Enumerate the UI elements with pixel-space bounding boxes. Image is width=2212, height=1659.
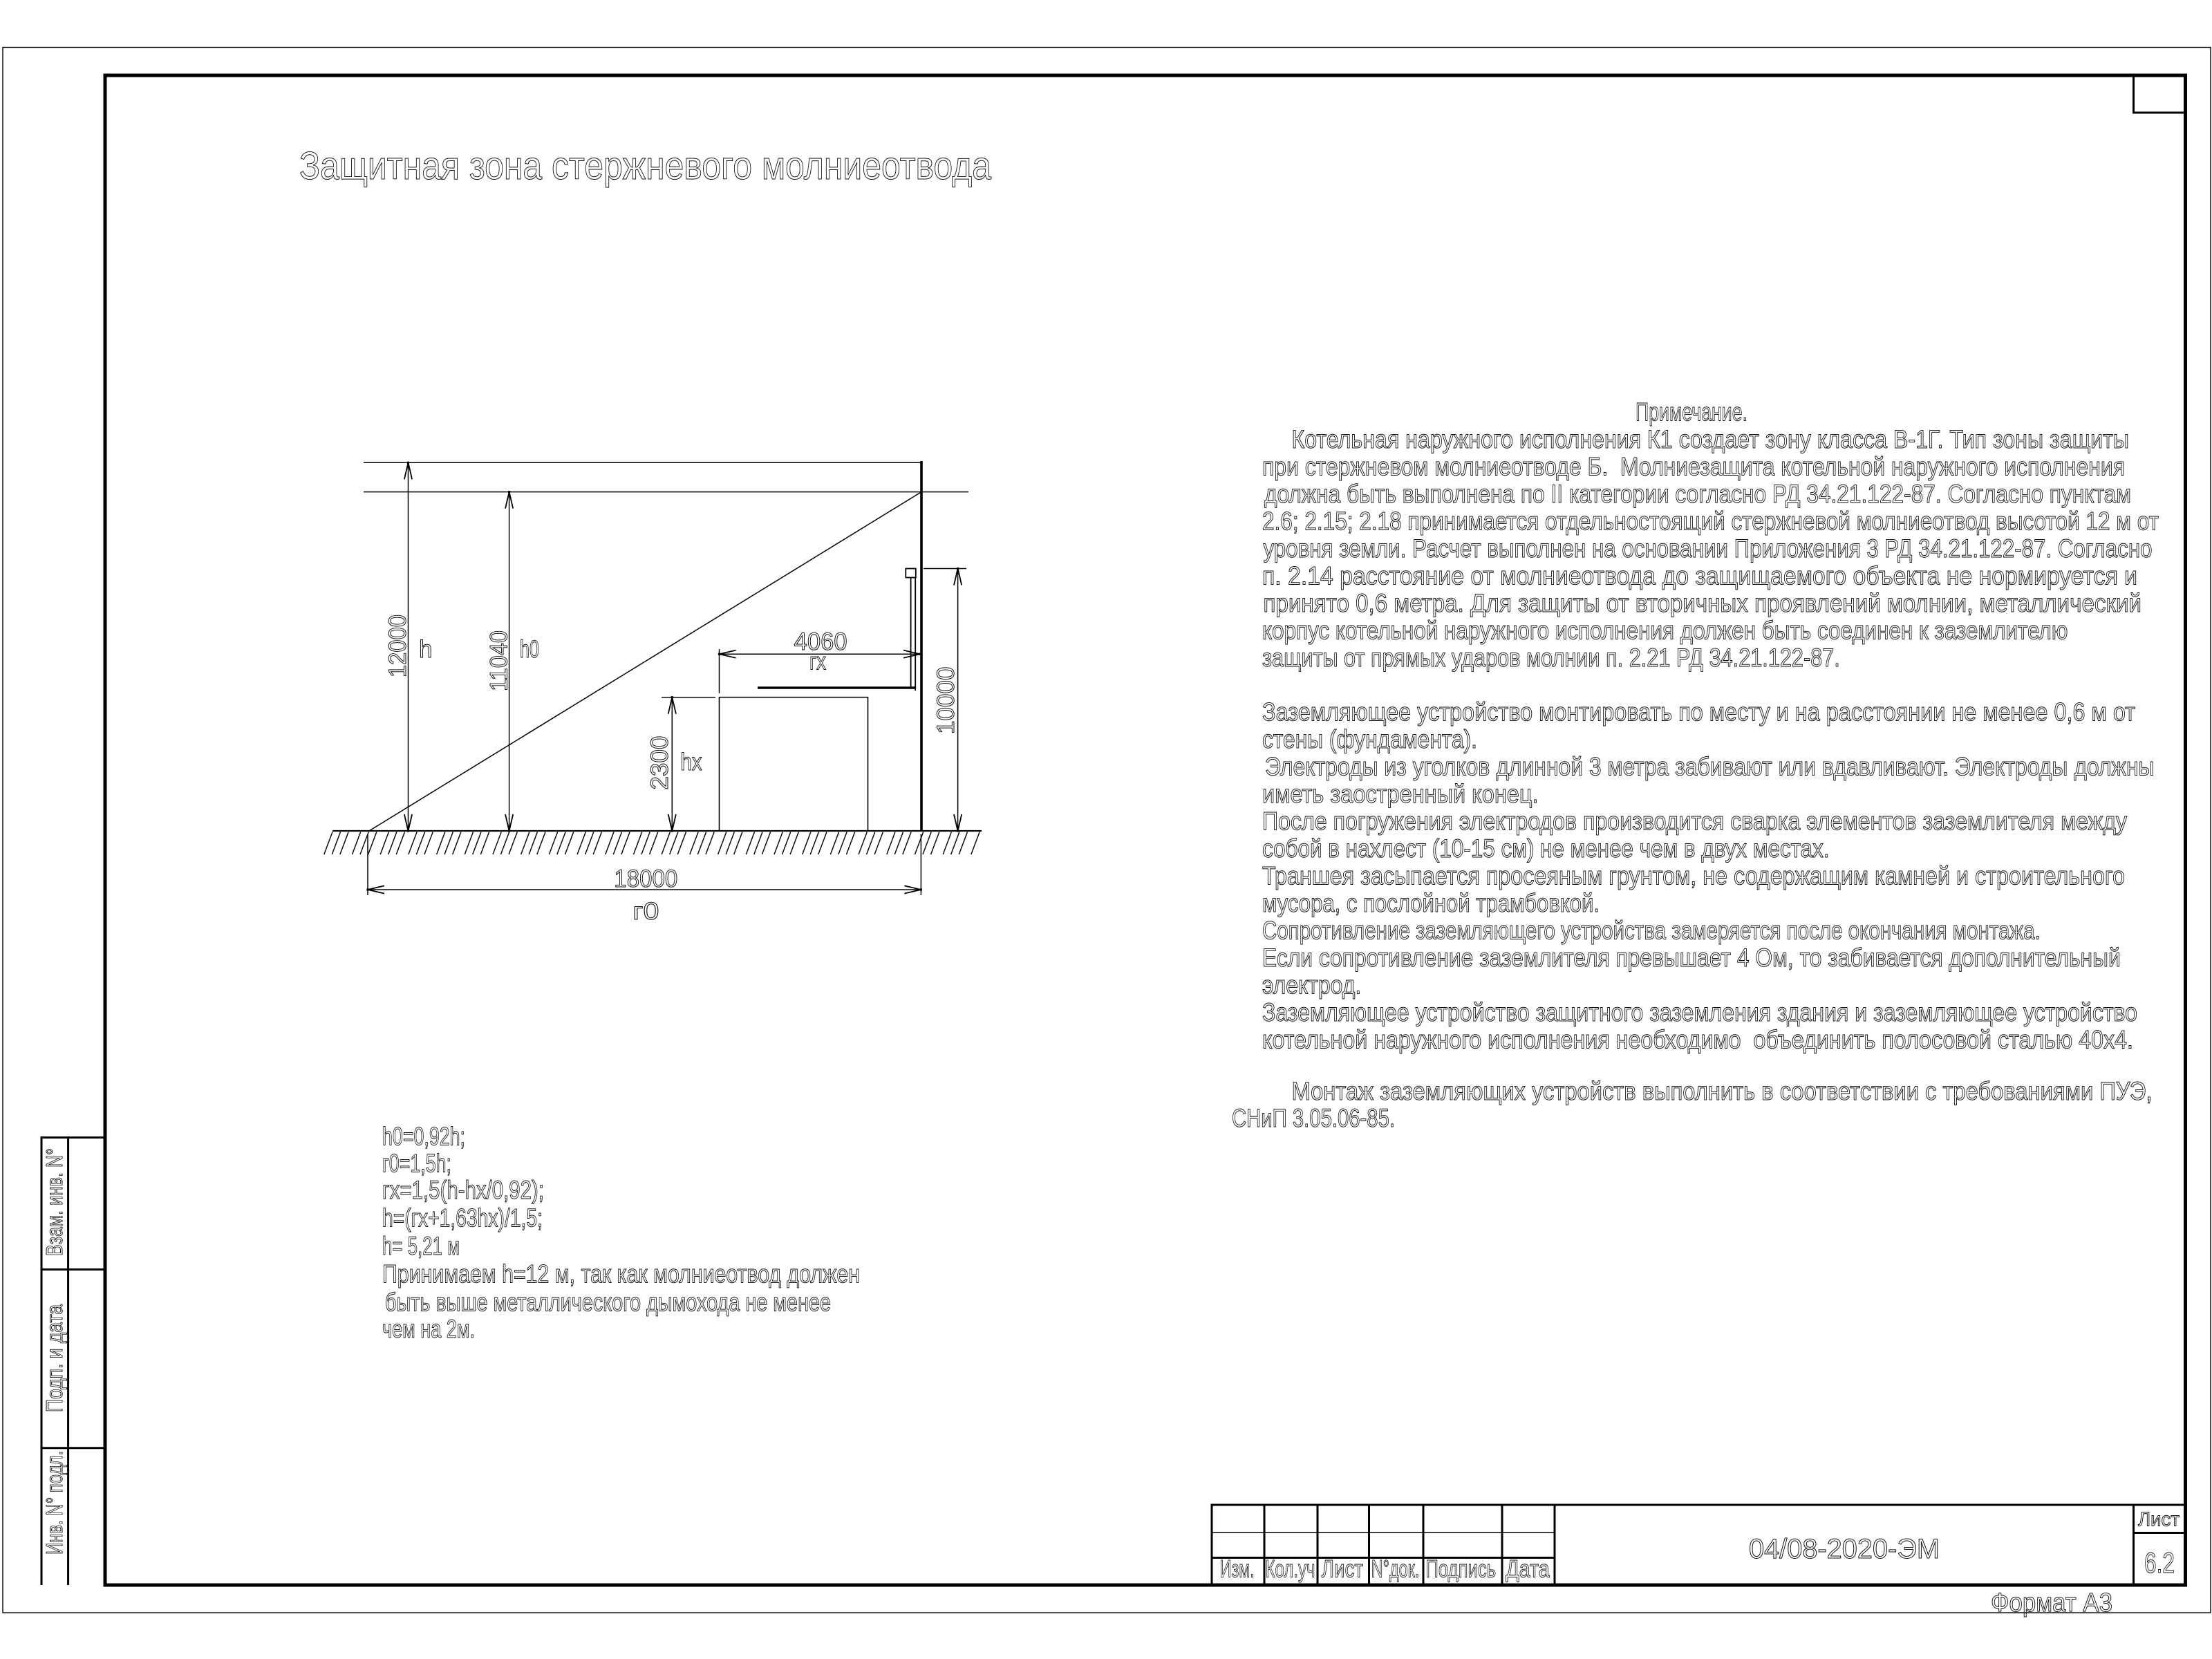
svg-text:Монтаж заземляющих устройств в: Монтаж заземляющих устройств выполнить в… [1292, 1077, 2153, 1105]
svg-text:защиты от прямых ударов молнии: защиты от прямых ударов молнии п. 2.21 Р… [1262, 644, 1840, 672]
svg-text:Котельная наружного исполнения: Котельная наружного исполнения К1 создае… [1292, 425, 2130, 453]
svg-text:h: h [419, 636, 432, 663]
svg-text:Примечание.: Примечание. [1635, 398, 1747, 427]
svg-text:Инв. N° подл.: Инв. N° подл. [41, 1451, 67, 1555]
svg-text:гх: гх [809, 648, 826, 675]
svg-text:Дата: Дата [1506, 1555, 1550, 1582]
svg-text:Электроды из уголков длинной 3: Электроды из уголков длинной 3 метра заб… [1265, 753, 2154, 781]
svg-text:Лист: Лист [1322, 1555, 1364, 1582]
svg-text:Заземляющее устройство защитно: Заземляющее устройство защитного заземле… [1262, 998, 2137, 1027]
svg-text:10000: 10000 [932, 667, 959, 735]
svg-text:быть выше металлического дымох: быть выше металлического дымохода не мен… [385, 1288, 831, 1317]
svg-text:Изм.: Изм. [1220, 1555, 1255, 1582]
svg-text:12000: 12000 [384, 615, 411, 677]
svg-text:стены (фундамента).: стены (фундамента). [1262, 725, 1477, 753]
svg-text:Принимаем h=12 м, так как молн: Принимаем h=12 м, так как молниеотвод до… [382, 1260, 860, 1288]
svg-text:Сопротивление заземляющего уст: Сопротивление заземляющего устройства за… [1262, 917, 2041, 945]
svg-text:уровня земли. Расчет выполнен: уровня земли. Расчет выполнен на основан… [1264, 534, 2153, 563]
svg-text:6.2: 6.2 [2144, 1546, 2175, 1579]
svg-text:иметь заостренный конец.: иметь заостренный конец. [1262, 780, 1539, 808]
svg-text:г0=1,5h;: г0=1,5h; [382, 1150, 451, 1178]
svg-text:Взам. инв. N°: Взам. инв. N° [41, 1148, 67, 1256]
svg-text:hx: hx [681, 749, 702, 776]
svg-text:должна быть выполнена по II ка: должна быть выполнена по II категории со… [1264, 480, 2131, 508]
svg-text:Если сопротивление заземлителя: Если сопротивление заземлителя превышает… [1262, 944, 2121, 972]
svg-text:котельной наружного исполнения: котельной наружного исполнения необходим… [1262, 1026, 2133, 1054]
svg-text:11040: 11040 [486, 630, 513, 691]
svg-text:собой в нахлест (10-15 см) не: собой в нахлест (10-15 см) не менее чем … [1262, 834, 1830, 863]
svg-text:2300: 2300 [646, 736, 673, 790]
svg-text:Защитная зона стержневого молн: Защитная зона стержневого молниеотвода [299, 144, 991, 188]
svg-text:Подпись: Подпись [1425, 1555, 1496, 1582]
svg-text:h0=0,92h;: h0=0,92h; [382, 1123, 465, 1151]
svg-text:18000: 18000 [614, 865, 677, 892]
svg-text:корпус котельной наружного исп: корпус котельной наружного исполнения до… [1262, 617, 2068, 645]
svg-text:h=(гх+1,63hx)/1,5;: h=(гх+1,63hx)/1,5; [382, 1204, 543, 1232]
svg-text:h0: h0 [520, 636, 539, 663]
svg-text:После погружения электродов пр: После погружения электродов производится… [1262, 807, 2127, 836]
svg-text:Заземляющее устройство монтиро: Заземляющее устройство монтировать по ме… [1262, 698, 2135, 727]
svg-text:Формат А3: Формат А3 [1991, 1588, 2112, 1618]
svg-text:2.6; 2.15; 2.18 принимается от: 2.6; 2.15; 2.18 принимается отдельностоя… [1262, 507, 2159, 536]
svg-text:при стержневом молниеотводе Б.: при стержневом молниеотводе Б. Молниезащ… [1262, 453, 2125, 481]
svg-text:электрод.: электрод. [1262, 971, 1361, 1000]
svg-text:п. 2.14 расстояние от молниеот: п. 2.14 расстояние от молниеотвода до за… [1262, 562, 2137, 590]
svg-text:Подп. и дата: Подп. и дата [41, 1304, 67, 1412]
svg-text:г0: г0 [632, 898, 659, 925]
svg-text:Кол.уч: Кол.уч [1266, 1555, 1315, 1582]
svg-text:h= 5,21 м: h= 5,21 м [382, 1232, 460, 1260]
svg-text:чем на 2м.: чем на 2м. [382, 1315, 475, 1343]
svg-text:СНиП 3.05.06-85.: СНиП 3.05.06-85. [1232, 1104, 1395, 1132]
svg-text:04/08-2020-ЭМ: 04/08-2020-ЭМ [1749, 1534, 1940, 1564]
svg-text:мусора, с послойной трамбовкой: мусора, с послойной трамбовкой. [1262, 889, 1600, 917]
svg-text:принято 0,6 метра. Для защиты: принято 0,6 метра. Для защиты от вторичн… [1264, 589, 2142, 617]
svg-text:N°док.: N°док. [1371, 1555, 1420, 1582]
svg-text:Траншея засыпается просеяным г: Траншея засыпается просеяным грунтом, не… [1262, 862, 2125, 890]
svg-text:гх=1,5(h-hx/0,92);: гх=1,5(h-hx/0,92); [382, 1176, 544, 1204]
svg-text:Лист: Лист [2138, 1509, 2180, 1531]
